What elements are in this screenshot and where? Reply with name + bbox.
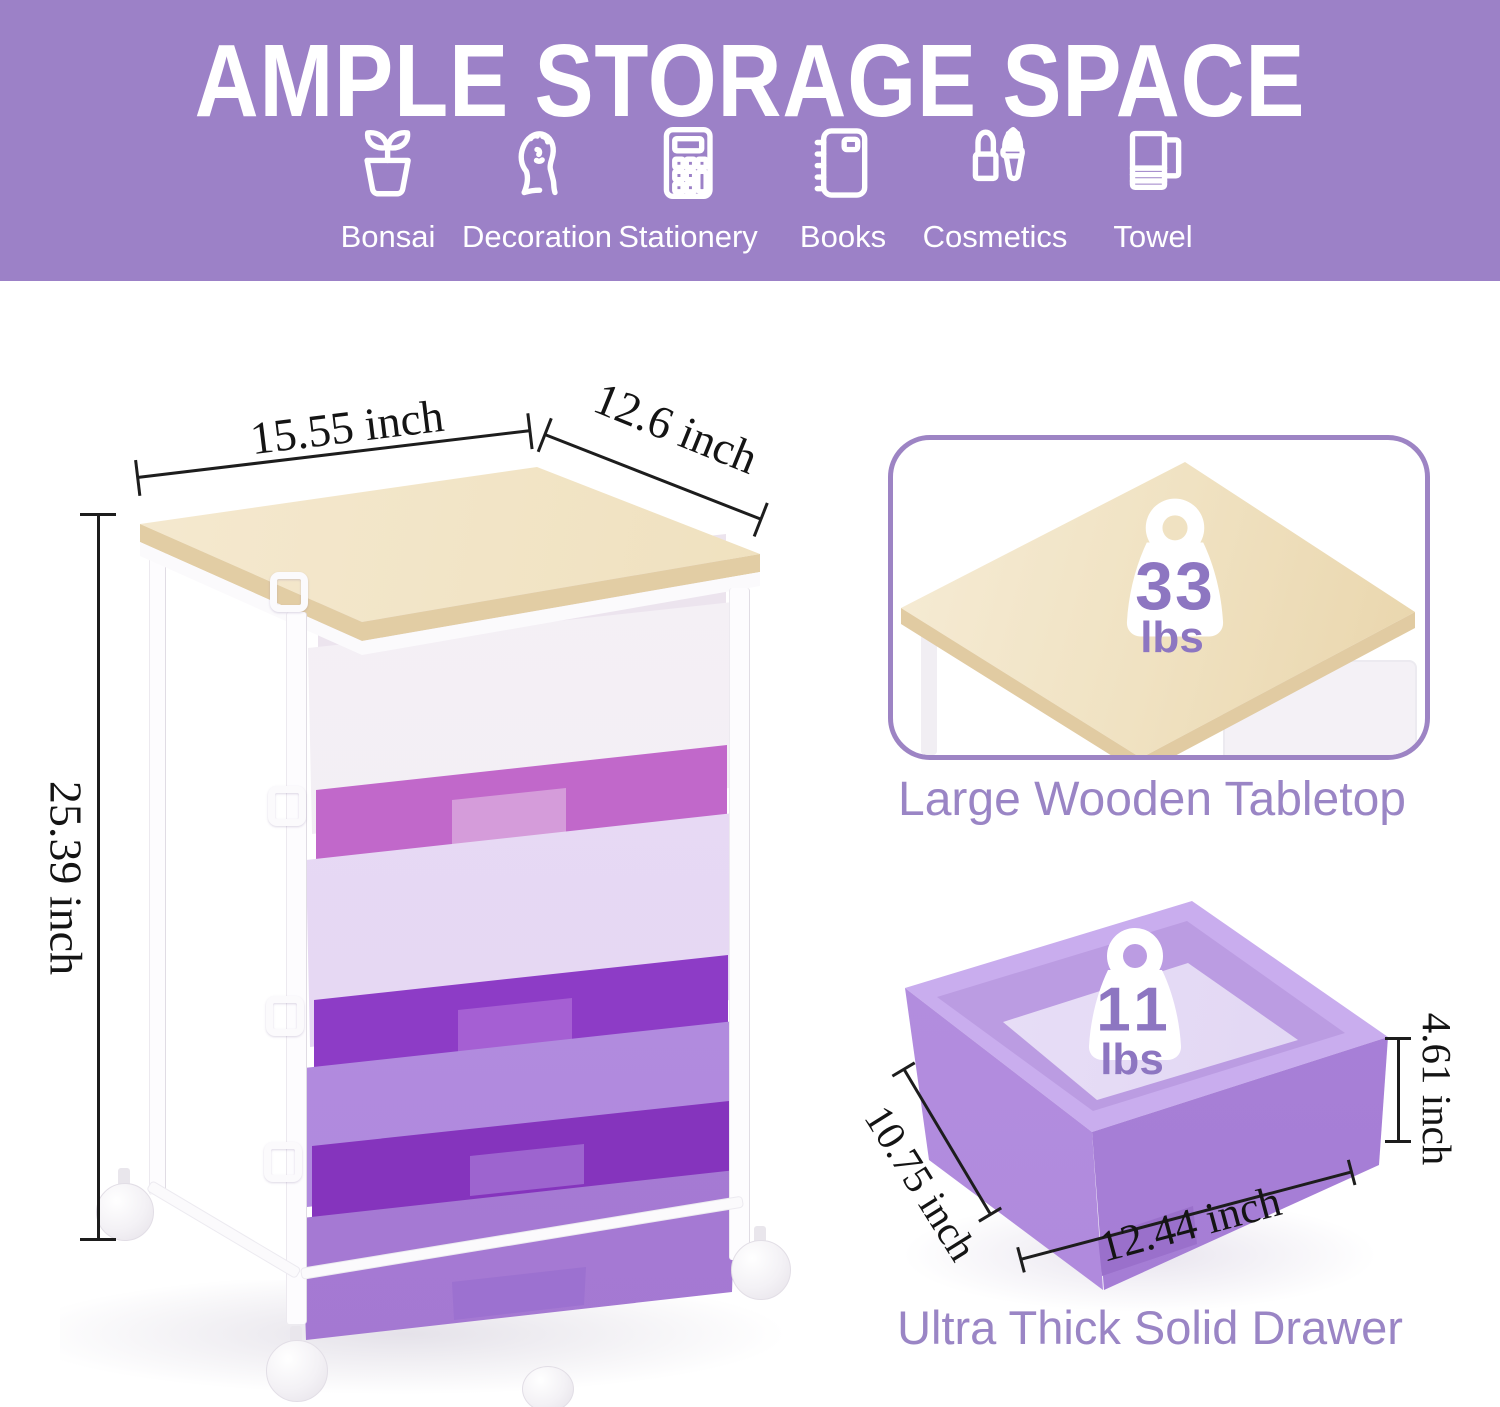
category-books: Books bbox=[800, 122, 886, 255]
category-bonsai: Bonsai bbox=[341, 122, 436, 255]
bonsai-icon bbox=[347, 122, 429, 209]
product-infographic: AMPLE STORAGE SPACE Bonsai bbox=[0, 0, 1500, 1407]
weight-capacity-11: 11 lbs bbox=[1068, 928, 1202, 1080]
towel-icon bbox=[1112, 122, 1194, 209]
dimension-label-drawer-height: 4.61 inch bbox=[1413, 1013, 1461, 1166]
tabletop-panel: 33 lbs bbox=[888, 435, 1430, 760]
drawer-caption: Ultra Thick Solid Drawer bbox=[897, 1300, 1403, 1355]
caster-wheel bbox=[731, 1240, 791, 1300]
dimension-line-drawer-height bbox=[1397, 1038, 1400, 1142]
drawer-hook bbox=[266, 996, 304, 1036]
category-cosmetics: Cosmetics bbox=[923, 122, 1068, 255]
notebook-icon bbox=[802, 122, 884, 209]
tabletop-caption: Large Wooden Tabletop bbox=[898, 772, 1406, 827]
drawer-hook bbox=[264, 1142, 302, 1182]
calculator-icon bbox=[647, 122, 729, 209]
category-stationery: Stationery bbox=[618, 122, 758, 255]
category-label: Books bbox=[800, 219, 886, 255]
cart-frame-post-back bbox=[149, 540, 166, 1195]
cart-frame-post-front-left bbox=[286, 612, 307, 1324]
category-label: Decoration bbox=[462, 219, 612, 255]
category-label: Bonsai bbox=[341, 219, 436, 255]
category-label: Towel bbox=[1113, 219, 1192, 255]
dimension-label-width: 15.55 inch bbox=[247, 389, 446, 465]
cart-frame-post-right bbox=[729, 588, 750, 1260]
cosmetics-icon bbox=[954, 122, 1036, 209]
weight-unit: lbs bbox=[1140, 613, 1204, 663]
caster-wheel bbox=[266, 1340, 328, 1402]
drawer-hook bbox=[270, 572, 308, 612]
header-banner: AMPLE STORAGE SPACE Bonsai bbox=[0, 0, 1500, 281]
category-decoration: Decoration bbox=[462, 122, 612, 255]
bust-icon bbox=[496, 122, 578, 209]
dimension-label-depth: 12.6 inch bbox=[587, 371, 766, 484]
caster-wheel bbox=[96, 1183, 154, 1241]
dimension-line-height bbox=[97, 514, 100, 1240]
category-label: Stationery bbox=[618, 219, 758, 255]
weight-unit: lbs bbox=[1100, 1035, 1164, 1085]
weight-capacity-33: 33 lbs bbox=[1105, 498, 1245, 658]
cart-bottom-rail-side bbox=[146, 1180, 302, 1279]
category-label: Cosmetics bbox=[923, 219, 1068, 255]
category-towel: Towel bbox=[1112, 122, 1194, 255]
drawer-hook bbox=[268, 786, 306, 826]
caster-wheel bbox=[522, 1366, 574, 1407]
dimension-label-height: 25.39 inch bbox=[40, 781, 93, 975]
